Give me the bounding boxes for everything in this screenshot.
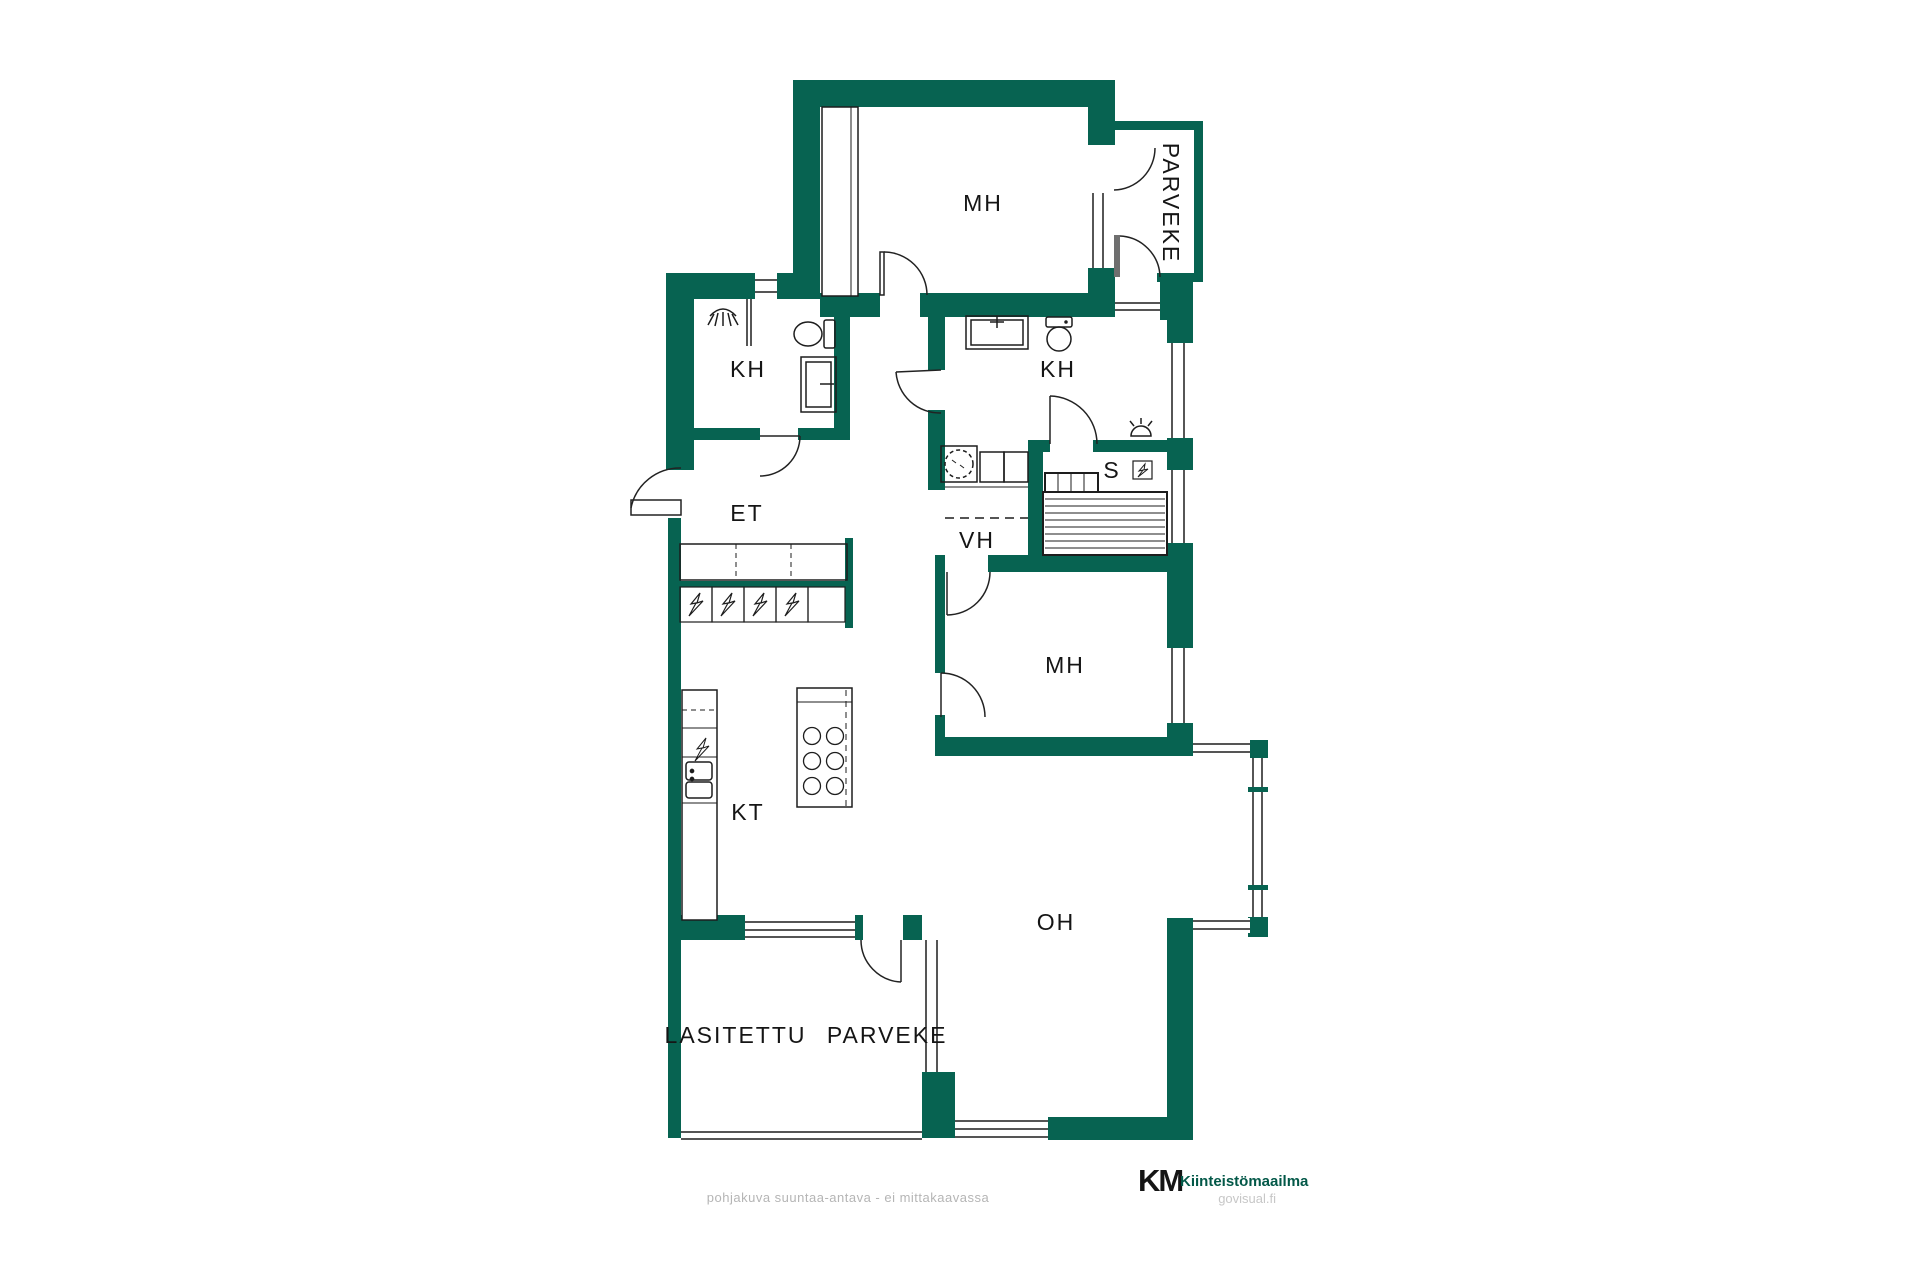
room-label-oh: OH bbox=[1037, 909, 1076, 935]
door-arc bbox=[861, 940, 901, 982]
entrance-door bbox=[631, 468, 681, 515]
room-label-parveke-top: PARVEKE bbox=[1158, 143, 1184, 264]
room-label-vh: VH bbox=[959, 527, 995, 553]
room-label-glazed-balcony: LASITETTU PARVEKE bbox=[665, 1022, 948, 1048]
door-arc bbox=[1114, 235, 1160, 277]
door-arc bbox=[896, 370, 941, 413]
door-arc bbox=[1114, 148, 1155, 190]
door-arc bbox=[941, 673, 985, 717]
room-label-et: ET bbox=[730, 500, 763, 526]
room-label-mh-top: MH bbox=[963, 190, 1003, 216]
wardrobe-icon bbox=[680, 544, 847, 580]
window-symbol bbox=[1250, 792, 1266, 885]
window-symbol bbox=[1193, 740, 1250, 756]
sauna-bench-icon bbox=[1043, 492, 1167, 555]
electrical-panel-icon bbox=[1133, 461, 1152, 479]
sauna-stove-icon bbox=[1045, 473, 1098, 492]
room-label-kh-right: KH bbox=[1040, 356, 1076, 382]
stove-hob-icon bbox=[797, 688, 852, 807]
window-symbol bbox=[1167, 648, 1193, 723]
door-arc bbox=[1050, 396, 1097, 444]
sink-icon bbox=[801, 357, 836, 412]
shower-screen bbox=[747, 299, 751, 346]
kitchen-counter bbox=[682, 690, 717, 920]
toilet-icon bbox=[794, 320, 835, 348]
floor-plan-svg: MH PARVEKE KH KH ET VH S MH KT OH LASITE… bbox=[0, 0, 1920, 1280]
room-label-mh-middle: MH bbox=[1045, 652, 1085, 678]
electrical-panel-icon bbox=[680, 587, 845, 622]
footer: pohjakuva suuntaa-antava - ei mittakaava… bbox=[707, 1163, 1309, 1206]
disclaimer-text: pohjakuva suuntaa-antava - ei mittakaava… bbox=[707, 1190, 990, 1205]
website-text: govisual.fi bbox=[1218, 1191, 1276, 1206]
km-logo-mark: KM bbox=[1138, 1163, 1182, 1198]
window-symbol bbox=[1115, 303, 1160, 310]
wardrobe-icon bbox=[822, 107, 858, 296]
window-symbol bbox=[755, 273, 777, 299]
window-symbol bbox=[745, 918, 855, 940]
washing-machine-icon bbox=[941, 446, 977, 482]
sauna-light-icon bbox=[1130, 418, 1152, 436]
window-symbol bbox=[955, 1117, 1048, 1140]
door-arc bbox=[760, 436, 800, 476]
door-arc bbox=[880, 252, 927, 295]
vh-lines bbox=[945, 487, 1028, 518]
toilet-icon bbox=[1046, 317, 1072, 351]
dryer-cabinet-icon bbox=[980, 452, 1028, 482]
room-label-sauna: S bbox=[1103, 457, 1120, 483]
sink-icon bbox=[966, 316, 1028, 349]
window-symbol bbox=[1250, 890, 1266, 917]
window-symbol bbox=[1167, 470, 1193, 543]
room-label-kh-left: KH bbox=[730, 356, 766, 382]
floor-plan-page: MH PARVEKE KH KH ET VH S MH KT OH LASITE… bbox=[0, 0, 1920, 1280]
room-label-kt: KT bbox=[731, 799, 764, 825]
brand-name-text: Kiinteistömaailma bbox=[1180, 1173, 1309, 1190]
window-symbol bbox=[1250, 758, 1266, 787]
window-symbol bbox=[1088, 193, 1115, 268]
window-symbol bbox=[1167, 343, 1193, 438]
door-arc bbox=[947, 572, 990, 615]
window-symbol bbox=[1193, 918, 1250, 933]
shower-icon bbox=[708, 309, 738, 326]
